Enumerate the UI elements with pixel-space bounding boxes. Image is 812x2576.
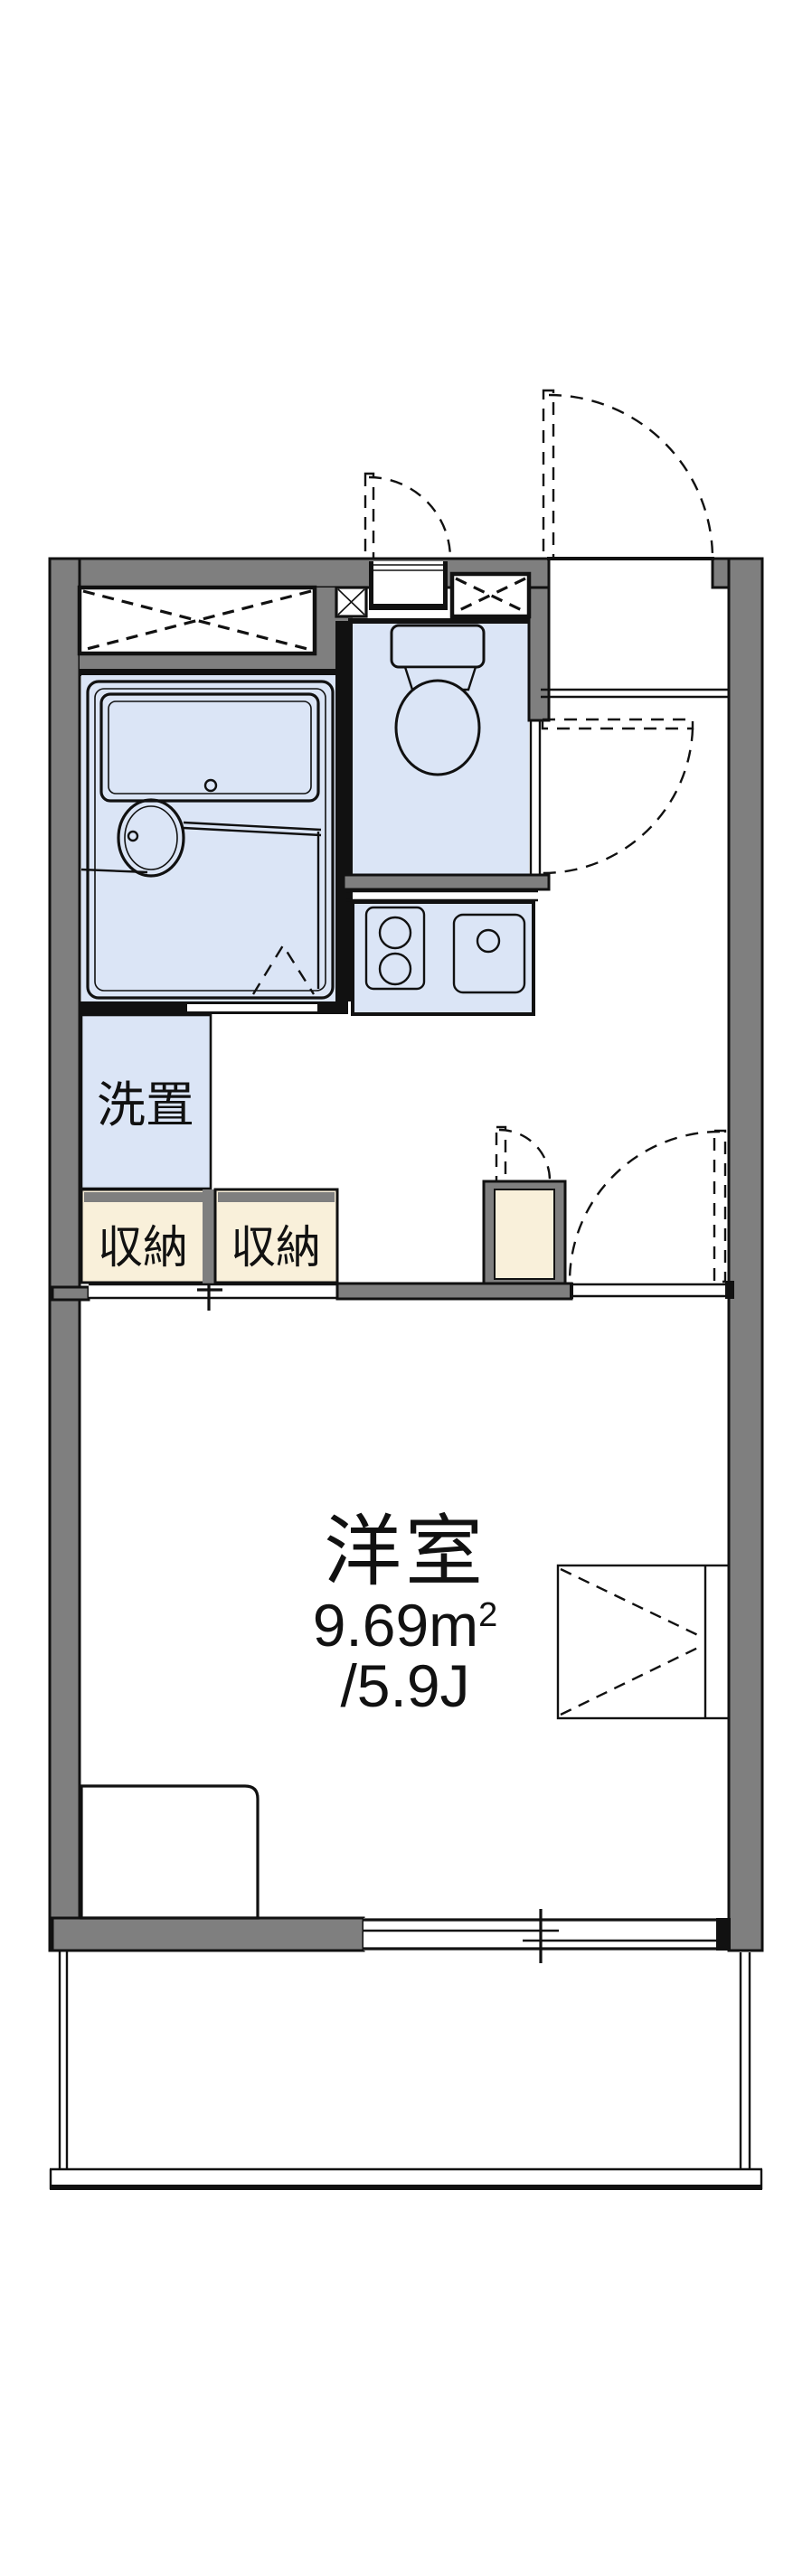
floorplan-canvas: 洗置 収納 収納 洋室 9.69m2 /5.9J <box>0 0 812 2576</box>
western-room: 洋室 9.69m2 /5.9J <box>81 1509 729 1963</box>
toilet-door-leaf <box>365 474 373 559</box>
balcony-rail-left <box>60 1951 67 2169</box>
bathroom-door-opening <box>187 1004 317 1011</box>
genkan-step-line <box>541 690 729 697</box>
floorplan-drawing: 洗置 収納 収納 洋室 9.69m2 /5.9J <box>0 0 812 2576</box>
hall-cabinet-door-arc <box>543 729 693 873</box>
toilet-bowl <box>396 681 479 775</box>
closet-top-left <box>80 588 315 653</box>
toilet-doorway-box <box>369 561 448 610</box>
toilet-door-jamb-right <box>443 561 448 610</box>
entrance-lintel-line <box>547 557 714 560</box>
folding-bed <box>558 1565 729 1718</box>
entrance-hall <box>541 390 729 873</box>
toilet-right-wall <box>529 588 549 720</box>
room-doorway-jamb-right <box>725 1281 734 1299</box>
balcony-outer-edge <box>50 2185 762 2190</box>
washer-label: 洗置 <box>97 1078 194 1133</box>
storage-right-label: 収納 <box>231 1222 321 1273</box>
wall-left <box>50 559 80 1951</box>
wall-bottom-right-cap <box>716 1918 731 1951</box>
kitchen <box>346 891 538 1014</box>
toilet-hall-partition <box>531 720 540 875</box>
room-area-jo-label: /5.9J <box>340 1652 469 1719</box>
toilet-bottom-wall <box>344 875 549 889</box>
toilet-door-arc <box>369 477 450 559</box>
entrance-shelf-box <box>452 574 529 616</box>
storage-left-top-strip <box>84 1192 203 1202</box>
room-area-m2-sup: 2 <box>478 1596 497 1634</box>
front-door-arc <box>549 395 713 559</box>
built-in-desk <box>81 1786 258 1918</box>
storage-left-label: 収納 <box>98 1222 188 1273</box>
front-door-leaf <box>543 390 553 559</box>
balcony-rail-right <box>741 1952 750 2169</box>
hall-room-wall <box>337 1283 571 1299</box>
room-door-leaf <box>714 1131 725 1282</box>
storage-right-top-strip <box>218 1192 335 1202</box>
bathroom-top-wall <box>80 669 353 676</box>
folding-bed-fold-icon <box>561 1569 703 1715</box>
toilet-tank <box>392 625 484 667</box>
toilet-door-sill <box>369 604 448 610</box>
room-area-label: 9.69m2 <box>313 1592 498 1659</box>
wall-right <box>729 559 762 1951</box>
kitchen-counter-lines <box>346 891 538 900</box>
room-corner-block <box>52 1287 89 1300</box>
kitchen-unit <box>353 902 533 1014</box>
hall-closet <box>495 1189 554 1279</box>
toilet-top-line <box>348 618 531 624</box>
hall-cabinet-door-leaf <box>543 719 693 729</box>
washer-and-storage: 洗置 収納 収納 <box>81 1015 337 1283</box>
room-door-arc <box>570 1132 720 1282</box>
toilet-room <box>344 474 549 889</box>
room-name-label: 洋室 <box>324 1509 486 1595</box>
wall-bath-kitchen <box>335 621 353 1001</box>
hall-closet-door-arc <box>499 1130 550 1180</box>
balcony <box>50 1951 762 2190</box>
hall-closet-door-leaf <box>496 1127 505 1181</box>
room-doorway-jamb-left <box>570 1283 573 1299</box>
wall-bottom-left <box>52 1918 364 1951</box>
toilet-door-jamb-left <box>369 561 373 610</box>
room-area-m2: 9.69m <box>313 1592 478 1659</box>
